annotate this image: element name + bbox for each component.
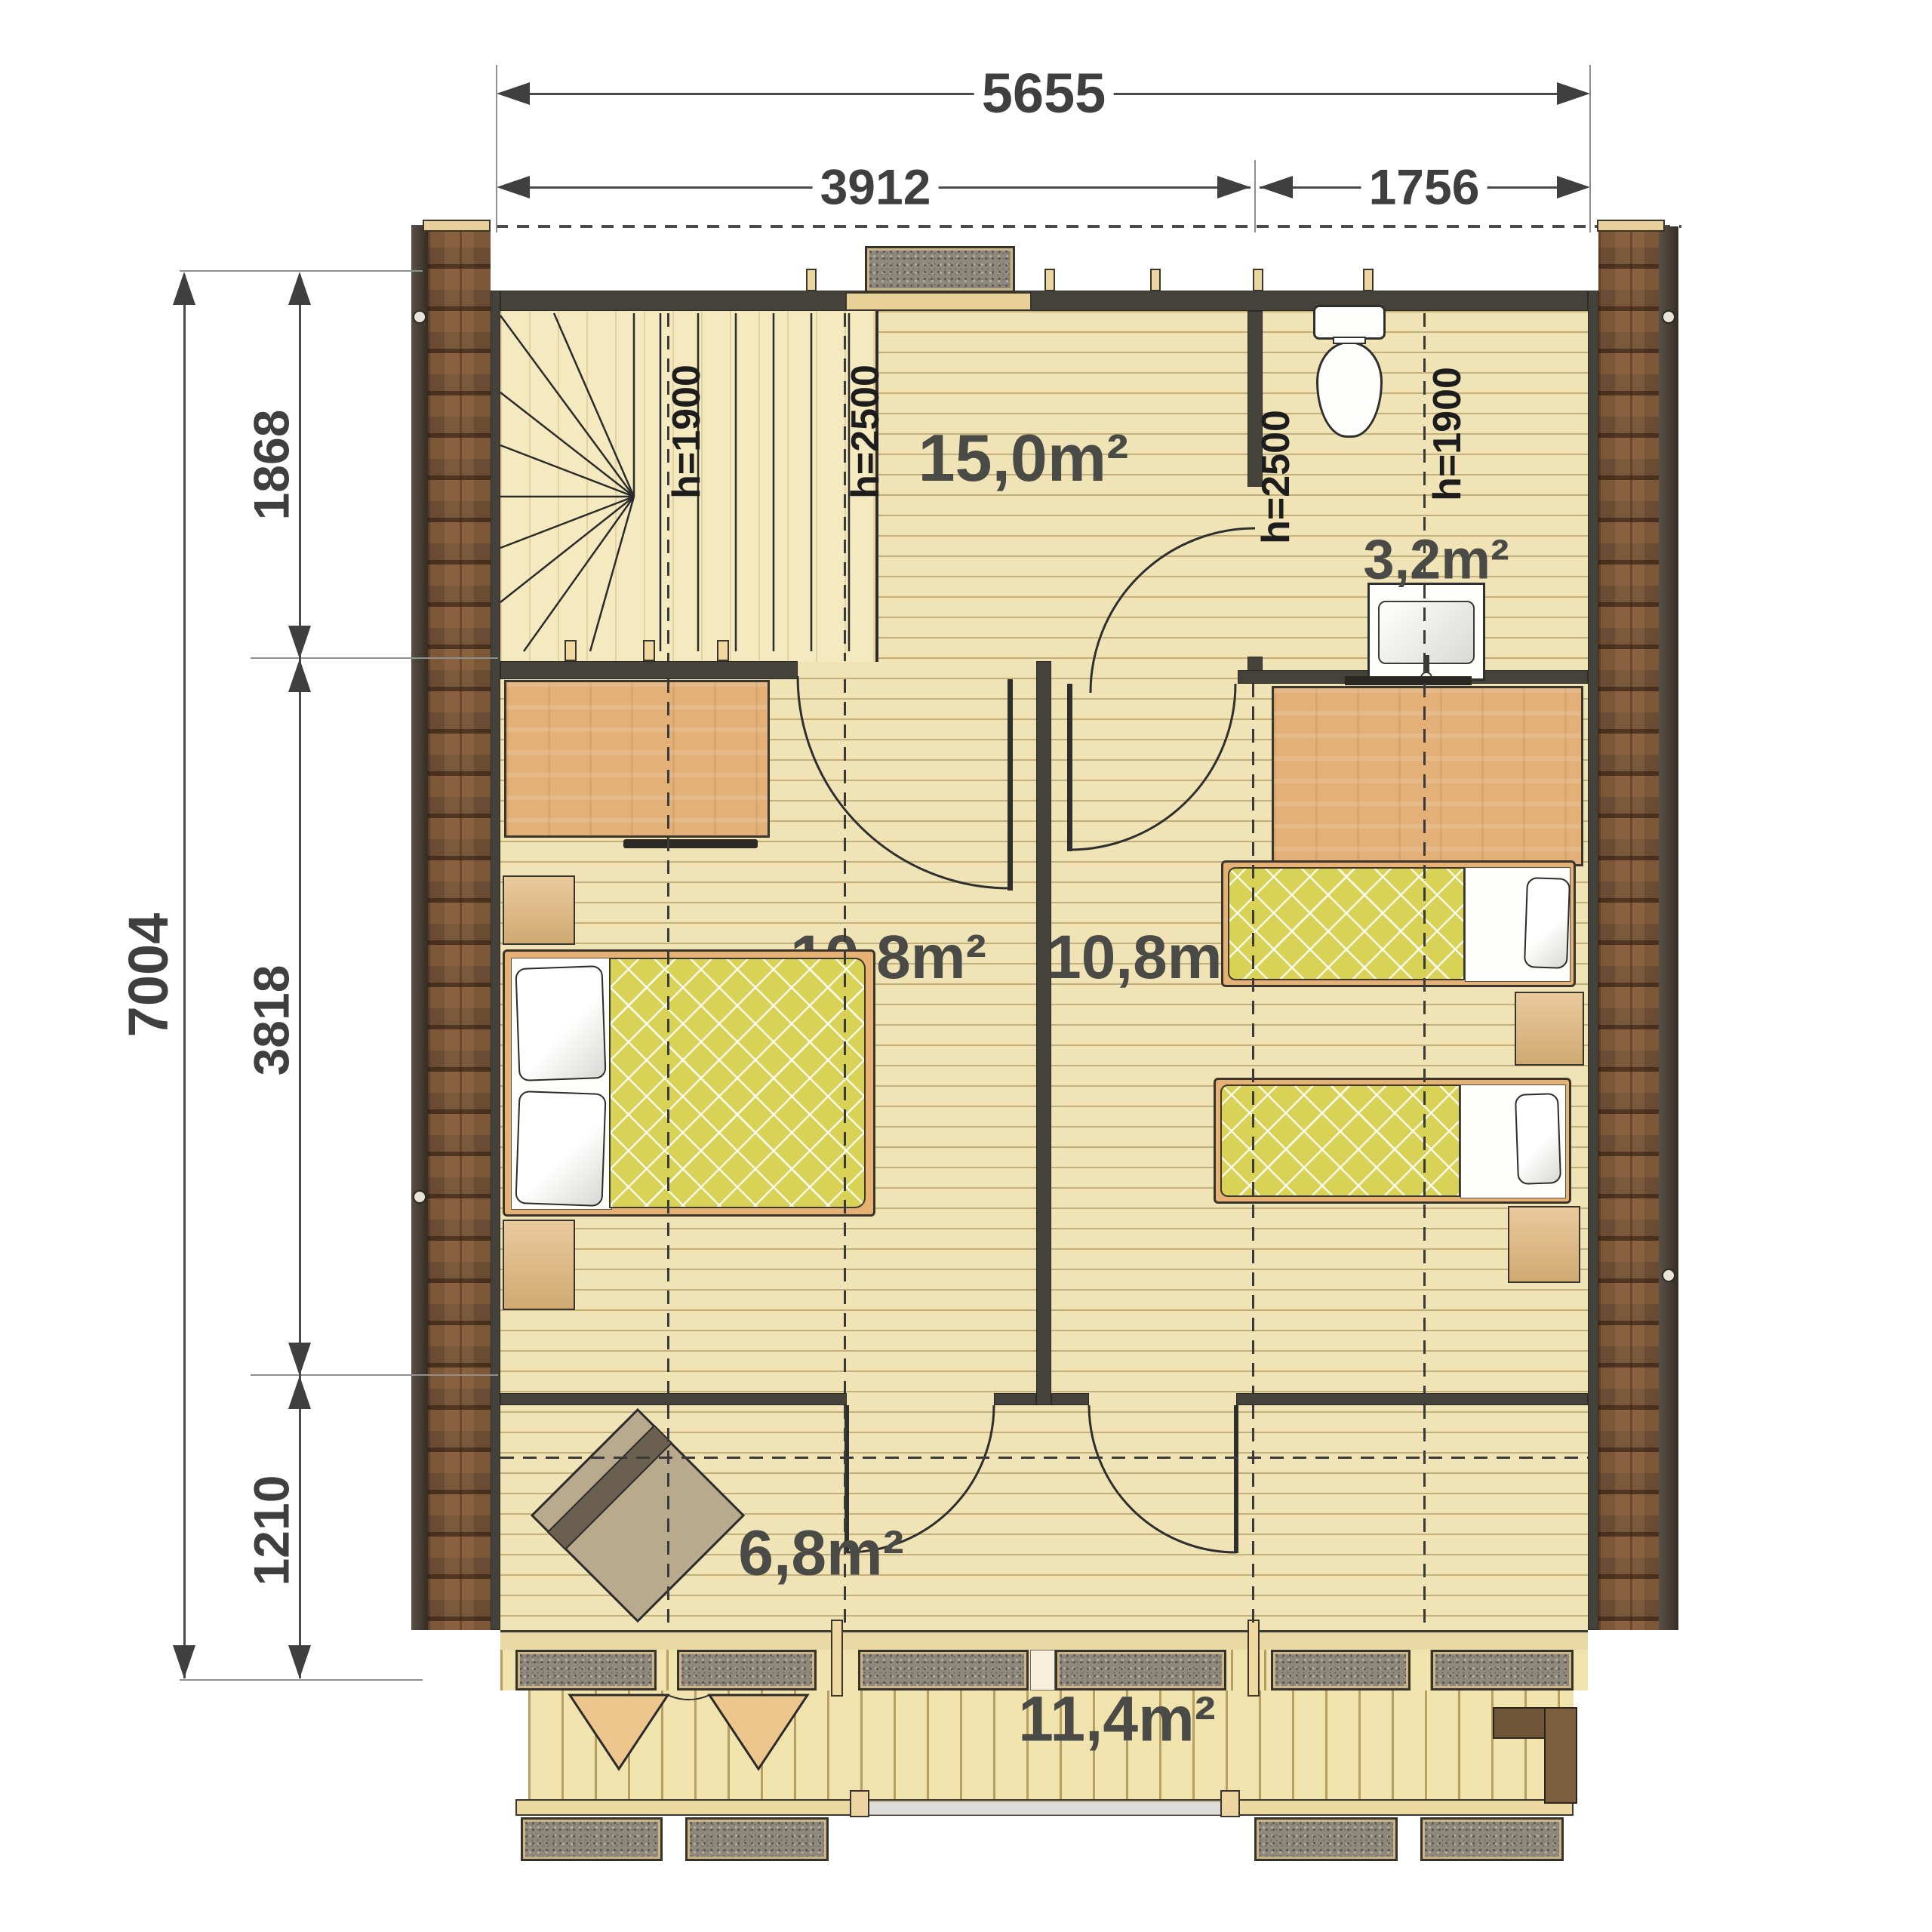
bottom-wall-sill xyxy=(500,1630,1588,1650)
nightstand xyxy=(1515,992,1584,1066)
dim-arrow xyxy=(288,1376,311,1409)
dim-arrow xyxy=(497,82,530,105)
wall-vent xyxy=(413,1190,426,1204)
hallway-wall xyxy=(500,1393,847,1405)
stair-newel xyxy=(643,640,655,661)
vanity-edge xyxy=(1345,676,1472,685)
hallway-wall xyxy=(994,1393,1036,1405)
single-bed-icon xyxy=(1214,1078,1571,1204)
bedroom-right-area-label: 10,8m² xyxy=(1047,922,1243,993)
bathroom-area-label: 3,2m² xyxy=(1363,528,1509,592)
bed-blanket xyxy=(1228,867,1465,980)
door-center-gap xyxy=(1030,1650,1055,1690)
ceiling-height-label: h=1900 xyxy=(664,365,709,499)
left-wall-shingles xyxy=(428,226,491,1630)
ceiling-height-label: h=2500 xyxy=(843,365,888,499)
door-jamb-post xyxy=(1247,1620,1260,1697)
right-eave-cap xyxy=(1597,220,1665,232)
door-jamb-post xyxy=(831,1620,843,1697)
window-icon xyxy=(865,246,1015,293)
dim-arrow xyxy=(1557,176,1590,198)
extension-line xyxy=(180,1679,423,1681)
height-line-horizontal xyxy=(500,1457,1588,1459)
window-icon xyxy=(1271,1650,1411,1690)
dim-arrow xyxy=(288,659,311,692)
wardrobe-rail xyxy=(623,839,758,848)
dim-top-right: 1756 xyxy=(1361,161,1487,213)
pillow xyxy=(515,1091,606,1207)
single-bed-icon xyxy=(1221,860,1576,987)
foundation-pad xyxy=(1254,1817,1398,1861)
dim-top-left: 3912 xyxy=(813,161,939,213)
height-line-2500-right xyxy=(1252,684,1254,1393)
door-leaf xyxy=(1008,679,1013,891)
bed-blanket xyxy=(609,958,866,1208)
ceiling-height-label: h=1900 xyxy=(1425,367,1470,501)
dim-side-lower: 1210 xyxy=(245,1468,297,1594)
dim-side-middle: 3818 xyxy=(245,958,297,1084)
wardrobe-icon xyxy=(504,680,770,838)
left-wall-inner xyxy=(491,291,500,1630)
dim-arrow xyxy=(288,272,311,305)
dim-arrow xyxy=(497,176,530,198)
dim-side-upper: 1868 xyxy=(245,402,297,528)
dim-arrow xyxy=(1260,176,1293,198)
top-window-sill xyxy=(845,292,1032,311)
toilet-seat-hinge xyxy=(1333,337,1366,344)
right-wall-inner xyxy=(1588,291,1598,1630)
dim-arrow xyxy=(288,1645,311,1678)
dim-arrow xyxy=(288,1343,311,1376)
window-icon xyxy=(677,1650,817,1690)
nightstand xyxy=(1508,1206,1580,1283)
log-end xyxy=(1253,269,1263,291)
right-wall-shingles xyxy=(1598,226,1659,1630)
wall-vent xyxy=(413,310,426,324)
hallway-area-label: 6,8m² xyxy=(738,1517,903,1590)
hallway-wall xyxy=(1236,1393,1588,1405)
deck-bench xyxy=(1544,1707,1577,1804)
loft-bedroom-wall xyxy=(500,661,798,679)
door-leaf xyxy=(1234,1405,1238,1553)
pillow xyxy=(1515,1093,1561,1185)
height-line-2500-left xyxy=(844,679,846,1393)
hallway-wall xyxy=(1051,1393,1089,1405)
dim-arrow xyxy=(173,272,195,305)
right-wall-outer-edge xyxy=(1659,226,1678,1630)
height-line-1900-left xyxy=(667,679,669,1393)
toilet-icon xyxy=(1313,305,1386,340)
window-icon xyxy=(1431,1650,1574,1690)
left-eave-cap xyxy=(423,220,491,232)
floor-plan-canvas: 11,4m² xyxy=(0,0,1932,1932)
top-exterior-wall xyxy=(500,291,1588,311)
terrace-area-label: 11,4m² xyxy=(1018,1683,1216,1756)
dim-line-side-overall xyxy=(183,275,186,1678)
height-line-1900-right xyxy=(1423,1405,1426,1630)
door-leaf xyxy=(1067,684,1072,851)
left-wall-outer-edge xyxy=(411,226,428,1630)
dim-arrow xyxy=(1557,82,1590,105)
dim-side-overall: 7004 xyxy=(119,906,178,1045)
log-end xyxy=(806,269,817,291)
nightstand xyxy=(503,875,575,945)
dim-top-overall: 5655 xyxy=(974,64,1114,123)
stair-newel xyxy=(565,640,577,661)
height-line-1900-right xyxy=(1423,684,1426,1393)
roof-overhang-dashed-line xyxy=(411,225,1681,228)
window-icon xyxy=(515,1650,657,1690)
bedroom-divider-wall xyxy=(1036,661,1051,1405)
ceiling-height-label: h=2500 xyxy=(1254,410,1299,544)
extension-line xyxy=(1254,160,1256,232)
double-bed-icon xyxy=(503,949,875,1217)
deck-post-left xyxy=(850,1790,869,1817)
wardrobe-icon xyxy=(1272,686,1583,866)
pillow xyxy=(1524,877,1571,969)
glazed-door-panel xyxy=(858,1650,1029,1690)
wall-vent xyxy=(1662,310,1675,324)
wall-vent xyxy=(1662,1269,1675,1282)
log-end xyxy=(1044,269,1055,291)
nightstand xyxy=(503,1220,575,1310)
height-line-1900-left xyxy=(667,1405,669,1630)
loft-area-label: 15,0m² xyxy=(918,420,1129,497)
height-line-2500-right xyxy=(1252,1405,1254,1630)
dim-line-side-sub xyxy=(299,275,301,1678)
glazed-door-panel xyxy=(1055,1650,1226,1690)
deck-step-strip xyxy=(868,1801,1222,1815)
foundation-pad xyxy=(685,1817,829,1861)
pillow xyxy=(515,965,606,1081)
log-end xyxy=(1363,269,1374,291)
deck-post-right xyxy=(1220,1790,1240,1817)
log-end xyxy=(1150,269,1161,291)
stair-newel xyxy=(717,640,729,661)
foundation-pad xyxy=(1420,1817,1564,1861)
dim-arrow xyxy=(173,1645,195,1678)
dim-arrow xyxy=(1217,176,1251,198)
foundation-pad xyxy=(521,1817,663,1861)
dim-arrow xyxy=(288,626,311,659)
